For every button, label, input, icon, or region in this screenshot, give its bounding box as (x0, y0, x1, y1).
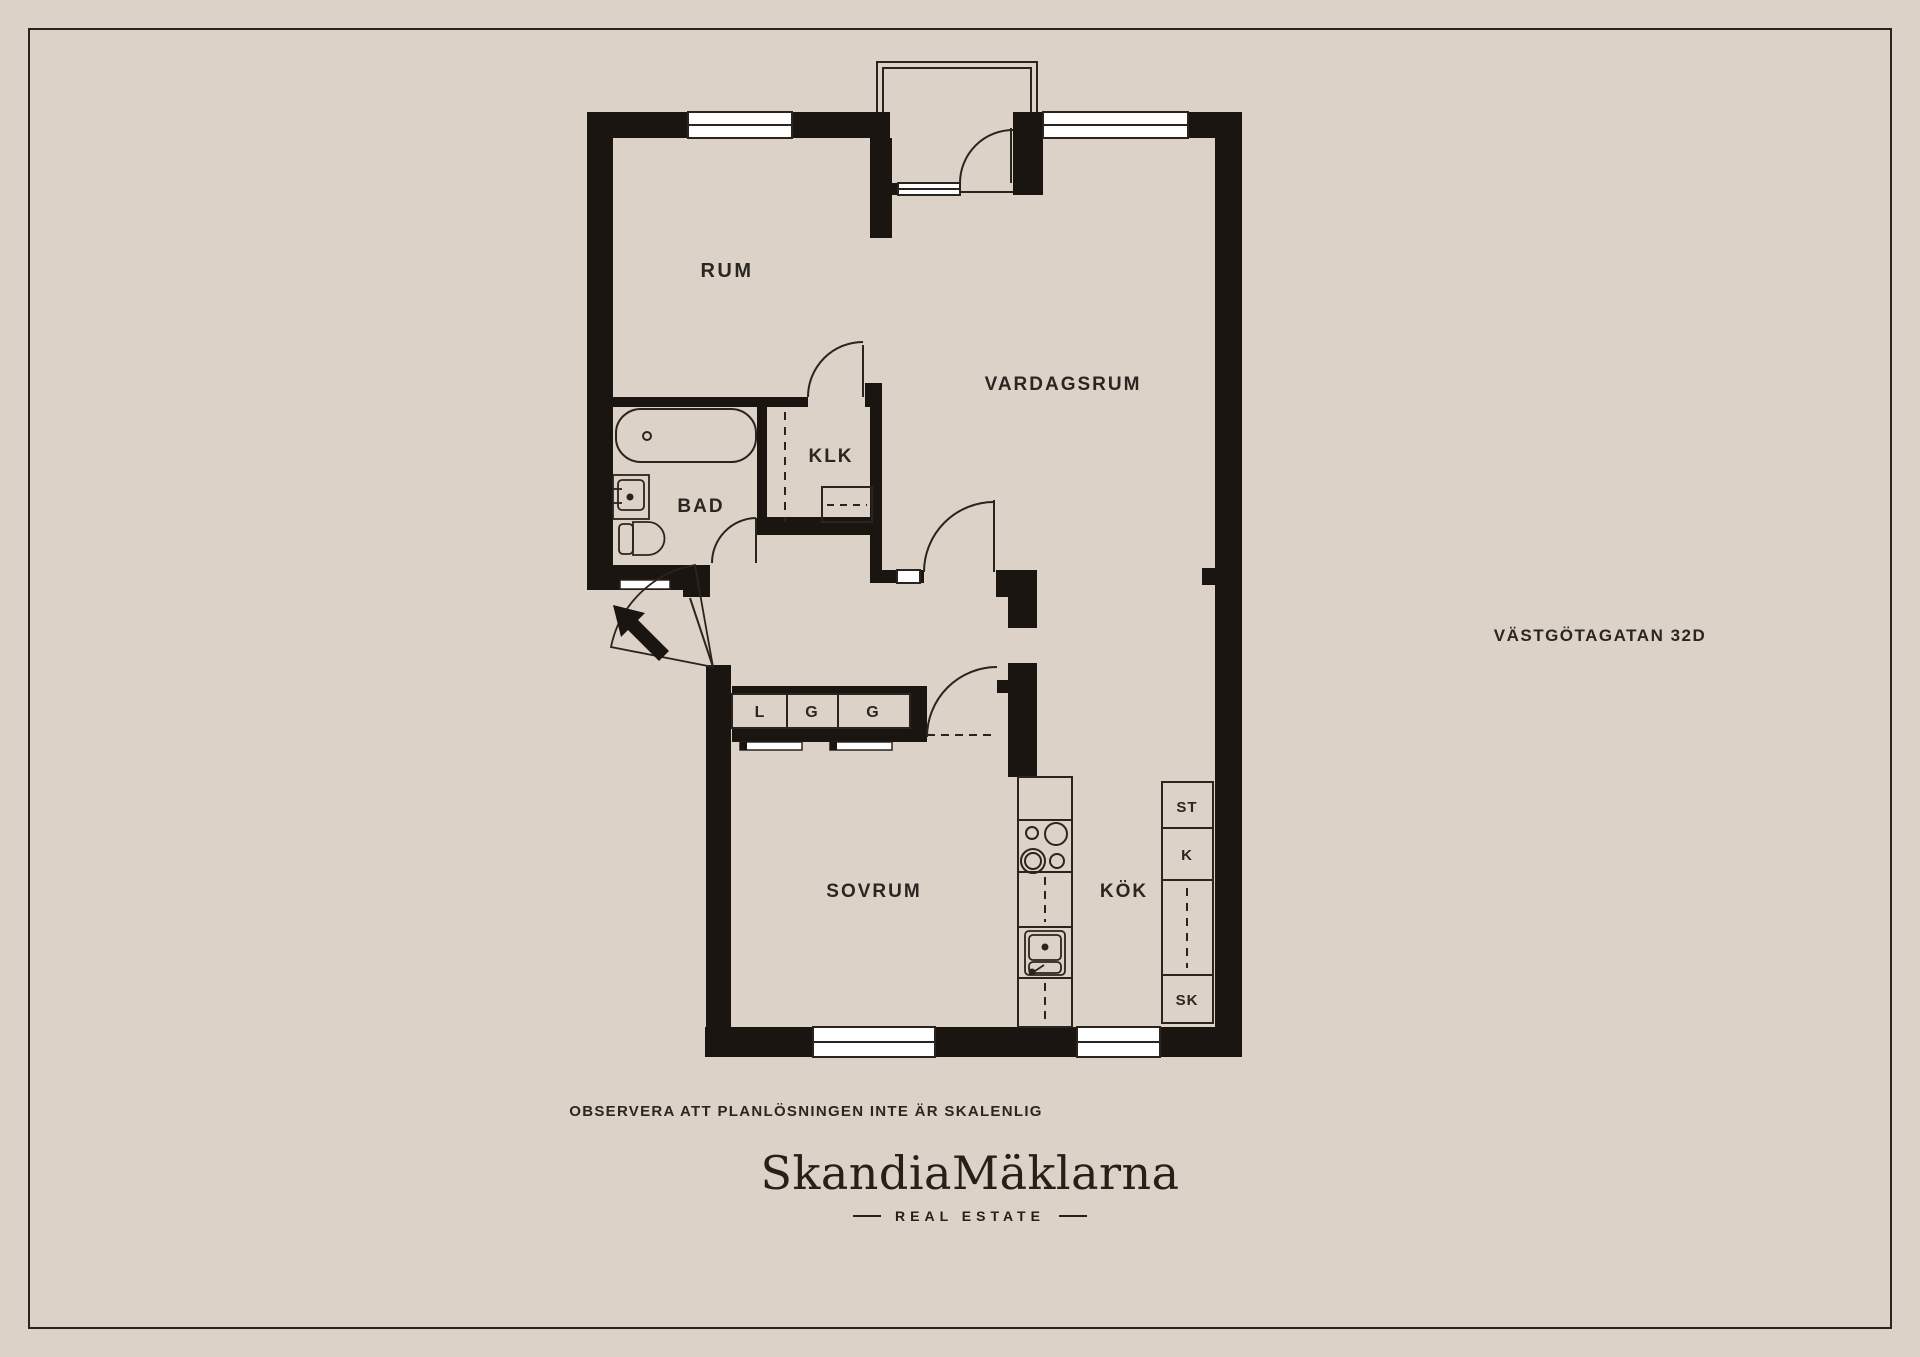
walls (587, 112, 1242, 1057)
rum-klk-door (808, 342, 863, 397)
label-sovrum: SOVRUM (826, 881, 921, 902)
label-cabinet-sk: SK (1176, 992, 1199, 1009)
brand-logo: SkandiaMäklarna (760, 1146, 1179, 1200)
kitchen-cabinets (1162, 782, 1213, 1023)
kok-window (1077, 1027, 1160, 1057)
address-label: VÄSTGÖTAGATAN 32D (1494, 626, 1707, 646)
rum-window (688, 112, 792, 138)
label-bad: BAD (677, 496, 724, 517)
kitchen-sink (1025, 931, 1065, 975)
label-rum: RUM (700, 260, 753, 282)
sovrum-door (927, 667, 997, 737)
brand-tagline: REAL ESTATE (853, 1208, 1087, 1224)
label-cabinet-st: ST (1176, 799, 1197, 816)
stove (1021, 823, 1067, 873)
label-closet-g1: G (805, 704, 818, 721)
klk-fixtures (785, 412, 872, 522)
kitchen-counter (1018, 777, 1072, 1027)
room-labels: RUM VARDAGSRUM KLK BAD SOVRUM KÖK L G G … (677, 260, 1198, 1009)
label-closet-l: L (755, 704, 766, 721)
tagline-text: REAL ESTATE (895, 1208, 1045, 1224)
bathtub (616, 409, 756, 462)
label-vardagsrum: VARDAGSRUM (985, 374, 1142, 395)
hall-vardagsrum-door (924, 500, 994, 572)
hall-sidelight-window (897, 570, 920, 583)
disclaimer-text: OBSERVERA ATT PLANLÖSNINGEN INTE ÄR SKAL… (569, 1103, 1043, 1120)
balcony-door (960, 128, 1013, 183)
label-kok: KÖK (1100, 881, 1148, 902)
toilet (619, 522, 665, 555)
tagline-right-dash (1059, 1215, 1087, 1217)
bad-door (712, 518, 756, 563)
label-klk: KLK (808, 446, 853, 467)
doors (611, 128, 1013, 737)
balcony-sill-window (898, 183, 960, 195)
sovrum-window (813, 1027, 935, 1057)
tagline-left-dash (853, 1215, 881, 1217)
vardagsrum-window (1043, 112, 1188, 138)
floorplan-page: RUM VARDAGSRUM KLK BAD SOVRUM KÖK L G G … (0, 0, 1920, 1357)
label-cabinet-k: K (1181, 847, 1193, 864)
label-closet-g2: G (866, 704, 879, 721)
bathroom-sink (613, 475, 649, 519)
bathroom-fixtures (613, 409, 756, 555)
